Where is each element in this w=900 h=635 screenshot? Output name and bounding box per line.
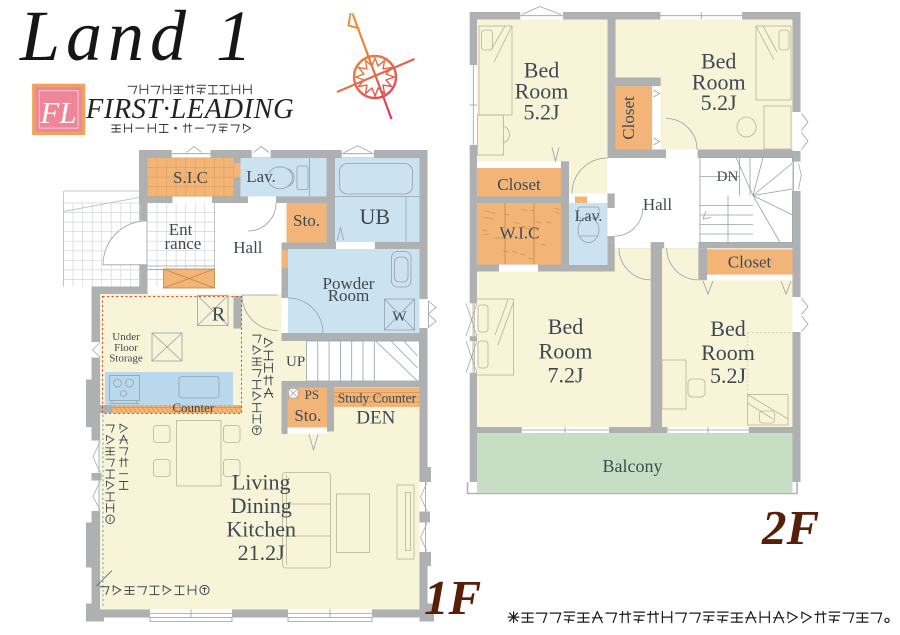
svg-text:Closet: Closet bbox=[728, 253, 772, 272]
svg-text:Closet: Closet bbox=[619, 96, 638, 140]
svg-text:Study Counter: Study Counter bbox=[338, 391, 417, 406]
svg-text:FL: FL bbox=[39, 95, 76, 130]
svg-text:Counter: Counter bbox=[172, 400, 215, 415]
svg-text:Living: Living bbox=[232, 470, 291, 495]
svg-text:Dining: Dining bbox=[231, 493, 292, 518]
svg-text:7.2J: 7.2J bbox=[547, 363, 584, 388]
svg-text:S.I.C: S.I.C bbox=[173, 168, 208, 187]
svg-text:Hall: Hall bbox=[233, 238, 263, 257]
svg-text:Bed: Bed bbox=[710, 316, 745, 341]
svg-text:Lav.: Lav. bbox=[575, 208, 603, 225]
svg-text:Room: Room bbox=[701, 340, 755, 365]
svg-text:UB: UB bbox=[360, 204, 391, 229]
svg-text:W: W bbox=[392, 309, 407, 325]
svg-text:Lav.: Lav. bbox=[246, 167, 276, 186]
svg-text:Closet: Closet bbox=[497, 175, 541, 194]
svg-text:Land 1: Land 1 bbox=[19, 0, 258, 76]
svg-text:Hall: Hall bbox=[643, 195, 673, 214]
svg-text:Sto.: Sto. bbox=[293, 211, 320, 230]
svg-text:FIRST·LEADING: FIRST·LEADING bbox=[85, 94, 294, 125]
svg-text:5.2J: 5.2J bbox=[701, 90, 738, 115]
svg-text:21.2J: 21.2J bbox=[238, 540, 286, 565]
svg-text:PS: PS bbox=[305, 387, 319, 402]
svg-text:Bed: Bed bbox=[548, 314, 583, 339]
svg-text:DEN: DEN bbox=[356, 408, 395, 429]
svg-text:1F: 1F bbox=[424, 570, 481, 625]
svg-text:Storage: Storage bbox=[109, 353, 143, 365]
svg-text:Sto.: Sto. bbox=[294, 406, 321, 425]
svg-text:Room: Room bbox=[539, 339, 593, 364]
svg-text:Room: Room bbox=[328, 286, 370, 305]
svg-text:Balcony: Balcony bbox=[603, 456, 663, 476]
svg-text:Kitchen: Kitchen bbox=[226, 517, 296, 542]
svg-text:rance: rance bbox=[164, 234, 201, 253]
svg-text:R: R bbox=[212, 304, 226, 326]
svg-text:UP: UP bbox=[286, 354, 305, 370]
svg-text:DN: DN bbox=[717, 169, 739, 185]
svg-text:5.2J: 5.2J bbox=[710, 363, 747, 388]
svg-text:W.I.C: W.I.C bbox=[500, 224, 540, 243]
svg-text:2F: 2F bbox=[761, 500, 819, 555]
svg-text:5.2J: 5.2J bbox=[523, 100, 560, 125]
